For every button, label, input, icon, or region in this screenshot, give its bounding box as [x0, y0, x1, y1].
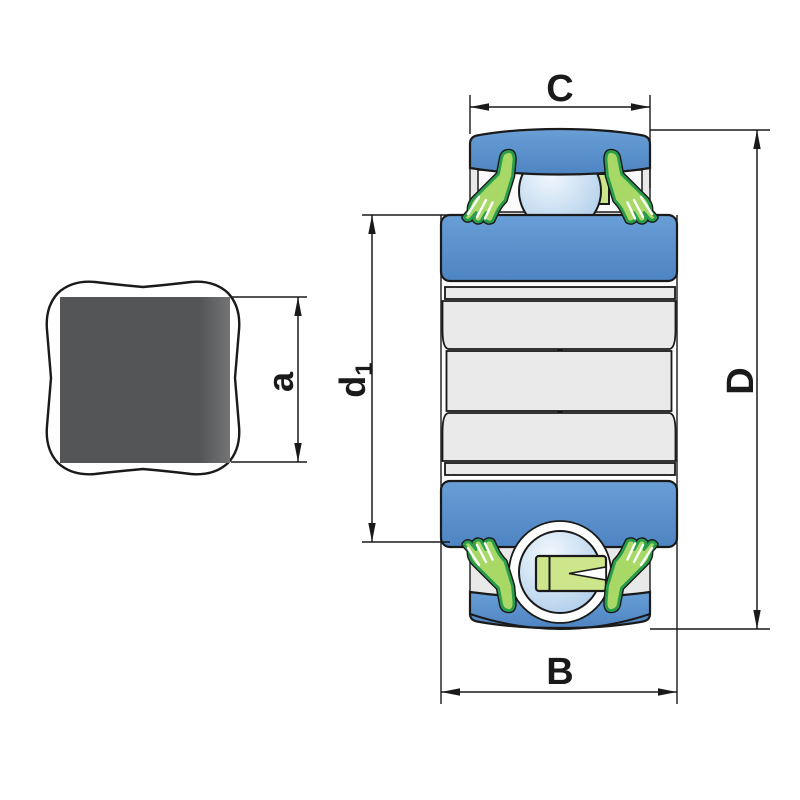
dim-d1-label-subscript: 1 [351, 362, 378, 375]
technical-drawing-page: a [0, 0, 800, 800]
square-bore-view: a [47, 282, 307, 475]
bearing-cross-section: C D d1 B [332, 68, 770, 704]
dim-b-arrow-left [441, 688, 460, 695]
sleeve-strip-lower [445, 463, 675, 475]
cage-pocket-bottom [536, 556, 606, 591]
dim-a-arrow-down [294, 443, 301, 462]
dim-a-arrow-up [294, 297, 301, 316]
dimension-a: a [231, 297, 307, 462]
sleeve-band-upper [443, 301, 676, 349]
dim-d1-arrow-down [368, 523, 375, 542]
square-bore-fill [60, 297, 230, 463]
inner-ring-top [441, 215, 677, 281]
dim-c-arrow-right [631, 103, 650, 110]
dimension-b: B [441, 651, 677, 696]
bearing-dimension-drawing: a [0, 0, 800, 800]
sleeve-band-lower [443, 413, 676, 461]
bore-sleeve [443, 287, 676, 475]
dim-d-arrow-up [753, 130, 760, 149]
dim-d1-arrow-up [368, 215, 375, 234]
dim-d1-extension-lines [362, 215, 450, 542]
dim-a-label: a [260, 371, 301, 392]
dim-b-arrow-right [658, 688, 677, 695]
dim-d-label: D [720, 367, 762, 394]
sleeve-band-middle [447, 351, 672, 411]
dim-d1-label-base: d [332, 376, 373, 398]
dimension-d1: d1 [332, 215, 450, 542]
sleeve-strip-upper [445, 287, 675, 299]
dim-c-label: C [546, 68, 573, 110]
dim-c-arrow-left [470, 103, 489, 110]
dim-d-arrow-down [753, 610, 760, 629]
dim-b-label: B [546, 651, 573, 693]
dim-d1-label: d1 [332, 362, 378, 397]
